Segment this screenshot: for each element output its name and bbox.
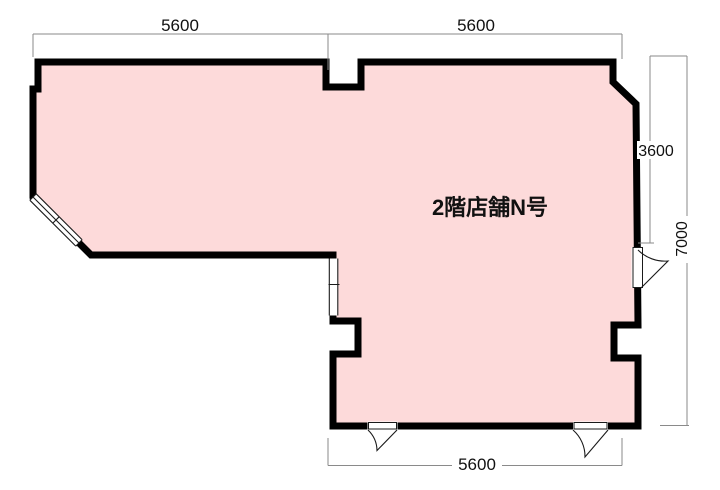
dim-label-right-upper: 3600 (638, 143, 674, 160)
dim-label-bottom: 5600 (458, 455, 496, 474)
bottom-door-right-swing-arc (573, 430, 608, 457)
room-outline (33, 62, 638, 426)
left-wall-window-band (329, 259, 339, 316)
right-wall-door (632, 247, 669, 288)
floor-plan-svg: 5600 5600 3600 7000 5600 2階店舗N号 (0, 0, 720, 490)
floor-plan-canvas: 5600 5600 3600 7000 5600 2階店舗N号 (0, 0, 720, 490)
unit-label: 2階店舗N号 (432, 195, 548, 220)
bottom-door-left (368, 422, 398, 451)
bottom-door-left-leaf (369, 423, 397, 430)
bottom-door-left-swing-arc (368, 430, 397, 451)
bottom-door-right (573, 422, 608, 458)
dim-label-top-right: 5600 (457, 16, 495, 35)
left-wall-window (329, 259, 340, 316)
bottom-door-right-leaf (574, 423, 607, 430)
dim-label-top-left: 5600 (161, 16, 199, 35)
dim-label-right-full: 7000 (674, 221, 691, 257)
